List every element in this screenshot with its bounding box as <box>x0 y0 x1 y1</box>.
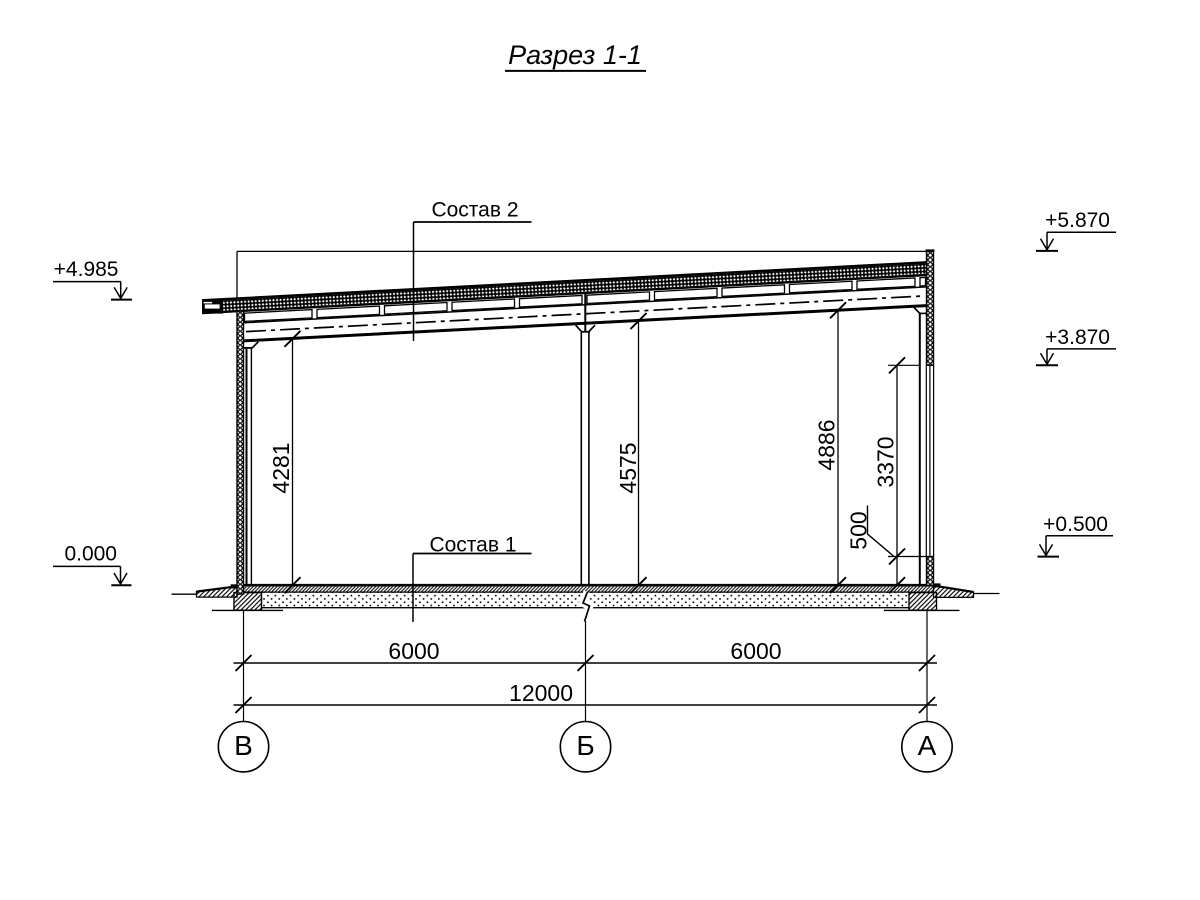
svg-text:12000: 12000 <box>509 680 573 706</box>
svg-text:4886: 4886 <box>813 419 839 470</box>
svg-text:+5.870: +5.870 <box>1045 209 1110 232</box>
svg-text:6000: 6000 <box>730 638 781 664</box>
svg-text:Разрез 1-1: Разрез 1-1 <box>508 40 642 70</box>
svg-text:6000: 6000 <box>388 638 439 664</box>
svg-text:3370: 3370 <box>872 436 898 487</box>
svg-text:А: А <box>918 730 937 761</box>
svg-text:+0.500: +0.500 <box>1043 513 1108 536</box>
svg-text:В: В <box>234 730 253 761</box>
svg-text:4281: 4281 <box>268 442 294 493</box>
svg-text:+4.985: +4.985 <box>54 258 119 281</box>
svg-text:4575: 4575 <box>615 442 641 493</box>
svg-text:+3.870: +3.870 <box>1045 326 1110 349</box>
svg-text:0.000: 0.000 <box>64 543 117 566</box>
svg-text:Б: Б <box>576 730 594 761</box>
svg-text:Состав 2: Состав 2 <box>431 199 518 222</box>
